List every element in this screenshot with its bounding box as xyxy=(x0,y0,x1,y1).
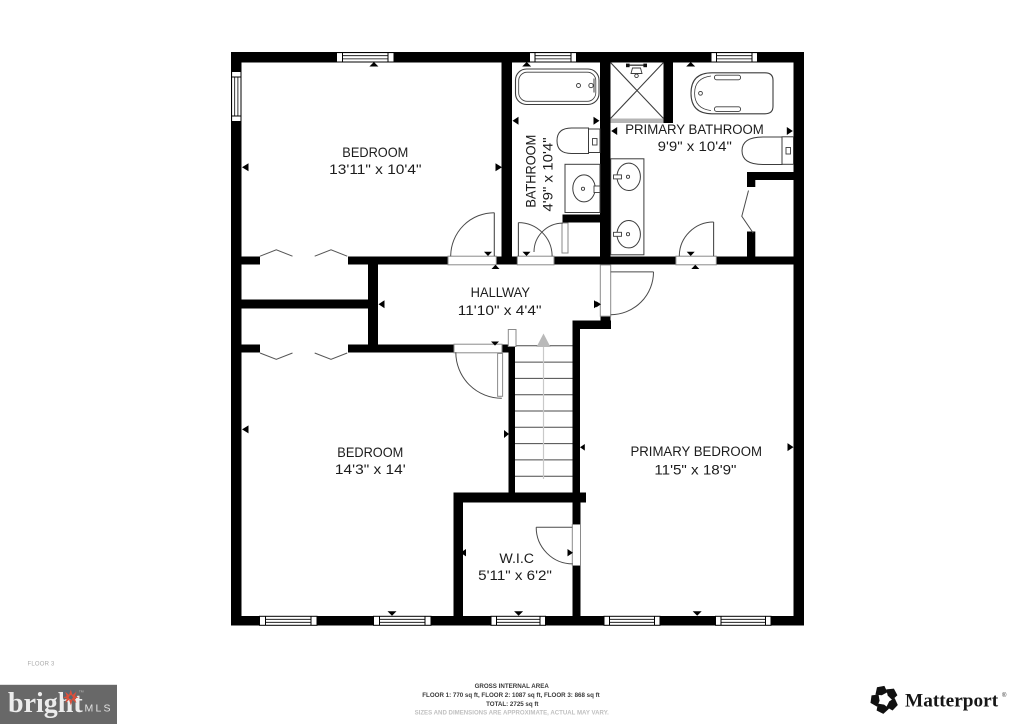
svg-text:MLS: MLS xyxy=(85,703,113,715)
svg-text:GROSS INTERNAL AREA: GROSS INTERNAL AREA xyxy=(475,683,550,690)
svg-text:14'3" x 14': 14'3" x 14' xyxy=(335,462,406,477)
svg-text:BATHROOM: BATHROOM xyxy=(523,135,539,208)
svg-text:HALLWAY: HALLWAY xyxy=(471,284,530,300)
svg-text:FLOOR 1: 770 sq ft, FLOOR 2: 1: FLOOR 1: 770 sq ft, FLOOR 2: 1087 sq ft,… xyxy=(422,692,599,699)
svg-text:BEDROOM: BEDROOM xyxy=(342,145,408,161)
svg-text:SIZES AND DIMENSIONS ARE APPRO: SIZES AND DIMENSIONS ARE APPROXIMATE, AC… xyxy=(415,709,610,716)
svg-text:5'11" x 6'2": 5'11" x 6'2" xyxy=(478,568,552,583)
svg-text:TOTAL: 2725 sq ft: TOTAL: 2725 sq ft xyxy=(486,701,538,708)
svg-text:PRIMARY BEDROOM: PRIMARY BEDROOM xyxy=(630,443,762,459)
svg-text:Matterport: Matterport xyxy=(905,691,999,712)
svg-text:PRIMARY BATHROOM: PRIMARY BATHROOM xyxy=(625,121,764,137)
svg-text:11'5" x 18'9": 11'5" x 18'9" xyxy=(654,463,736,478)
svg-text:™: ™ xyxy=(79,690,85,696)
svg-text:4'9" x 10'4": 4'9" x 10'4" xyxy=(541,137,557,211)
svg-text:®: ® xyxy=(1002,692,1007,699)
svg-text:11'10" x 4'4": 11'10" x 4'4" xyxy=(458,303,542,318)
svg-text:BEDROOM: BEDROOM xyxy=(337,445,403,461)
svg-text:9'9" x 10'4": 9'9" x 10'4" xyxy=(658,139,732,155)
svg-text:FLOOR 3: FLOOR 3 xyxy=(28,662,56,668)
svg-text:13'11" x 10'4": 13'11" x 10'4" xyxy=(329,162,421,177)
svg-text:W.I.C: W.I.C xyxy=(499,551,534,567)
